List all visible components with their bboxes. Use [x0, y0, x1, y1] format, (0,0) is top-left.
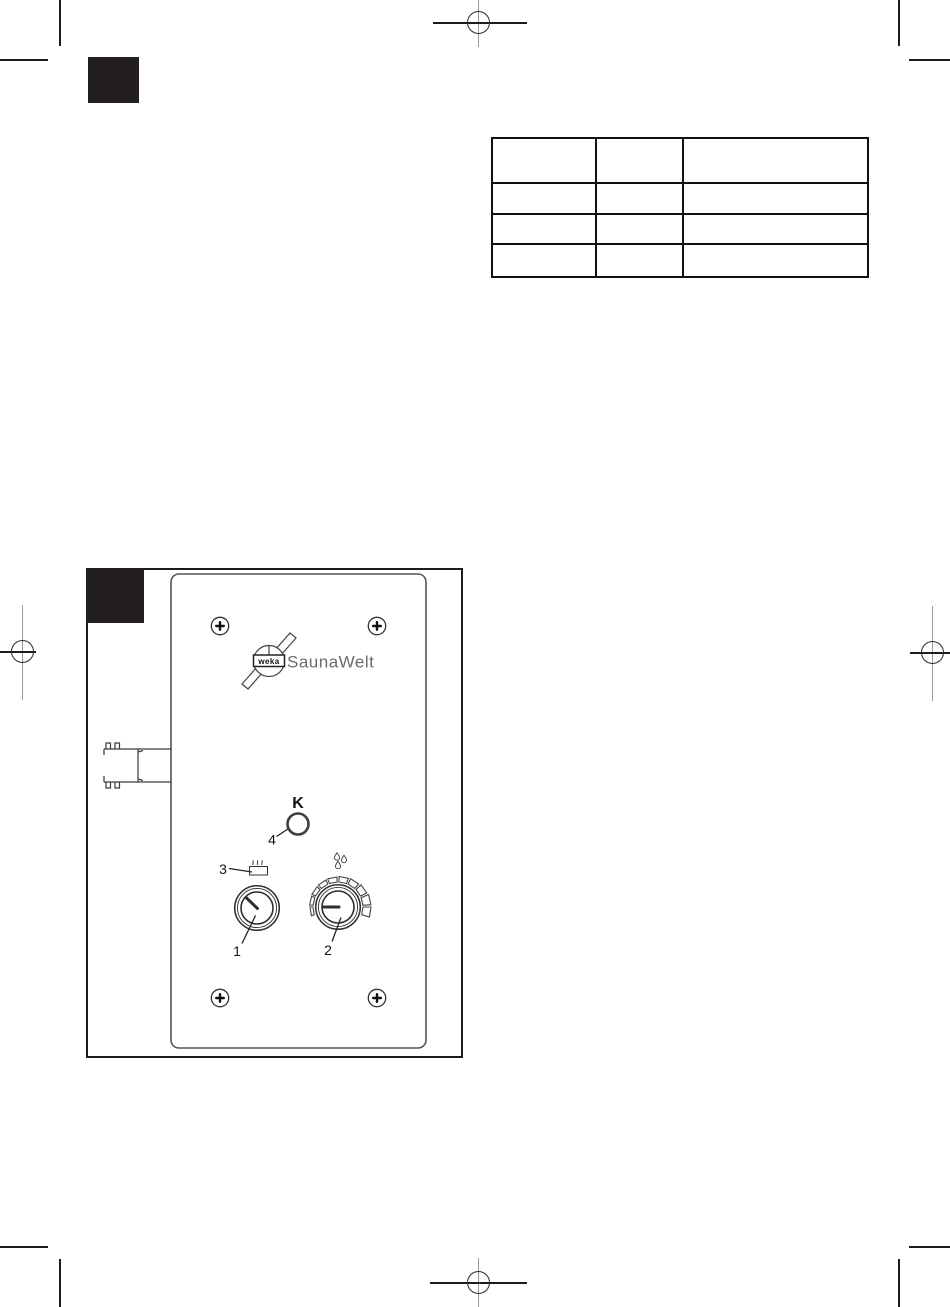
screw-bottom-right-icon [368, 989, 385, 1006]
spec-table-cell [493, 245, 597, 276]
figure-label-square [86, 568, 144, 623]
spec-table-cell [493, 139, 597, 184]
spec-table-cell [684, 245, 867, 276]
page-label-square [88, 57, 139, 103]
indicator-lamp-letter: K [292, 795, 304, 812]
spec-table-cell [684, 215, 867, 245]
registration-mark-right-circle [921, 641, 944, 664]
spec-table-cell [684, 184, 867, 215]
screw-bottom-left-icon [211, 989, 228, 1006]
crop-mark-bottom-right-vertical [898, 1259, 900, 1307]
screw-top-left-icon [211, 617, 228, 634]
crop-mark-top-left-horizontal [0, 59, 48, 61]
crop-mark-top-left-vertical [59, 0, 61, 46]
crop-mark-top-right-horizontal [909, 59, 950, 61]
screw-top-right-icon [368, 617, 385, 634]
spec-table-cell [493, 184, 597, 215]
callout-2-label: 2 [324, 942, 332, 958]
callout-1-label: 1 [233, 943, 241, 959]
cable-connector [104, 743, 171, 788]
brand-name: SaunaWelt [287, 653, 374, 672]
crop-mark-top-right-vertical [898, 0, 900, 46]
spec-table-cell [597, 215, 684, 245]
spec-table-cell [493, 215, 597, 245]
spec-table-cell [597, 245, 684, 276]
spec-table-cell [684, 139, 867, 184]
temperature-knob [235, 886, 280, 931]
crop-mark-bottom-left-horizontal [0, 1246, 48, 1248]
control-panel-figure: weka SaunaWelt K 4 3 1 [86, 568, 463, 1058]
callout-3-label: 3 [219, 861, 227, 877]
spec-table [491, 137, 869, 278]
indicator-lamp-icon [288, 814, 309, 835]
registration-mark-bottom-center-circle [467, 1271, 490, 1294]
spec-table-cell [597, 184, 684, 215]
spec-table-cell [597, 139, 684, 184]
control-panel-drawing: weka SaunaWelt K 4 3 1 [86, 568, 463, 1058]
weka-logo-text: weka [257, 657, 279, 666]
registration-mark-left-circle [11, 640, 34, 663]
callout-4-label: 4 [268, 832, 276, 848]
humidity-knob [316, 885, 361, 930]
crop-mark-bottom-left-vertical [59, 1259, 61, 1307]
registration-mark-top-center-circle [467, 11, 490, 34]
crop-mark-bottom-right-horizontal [909, 1246, 950, 1248]
